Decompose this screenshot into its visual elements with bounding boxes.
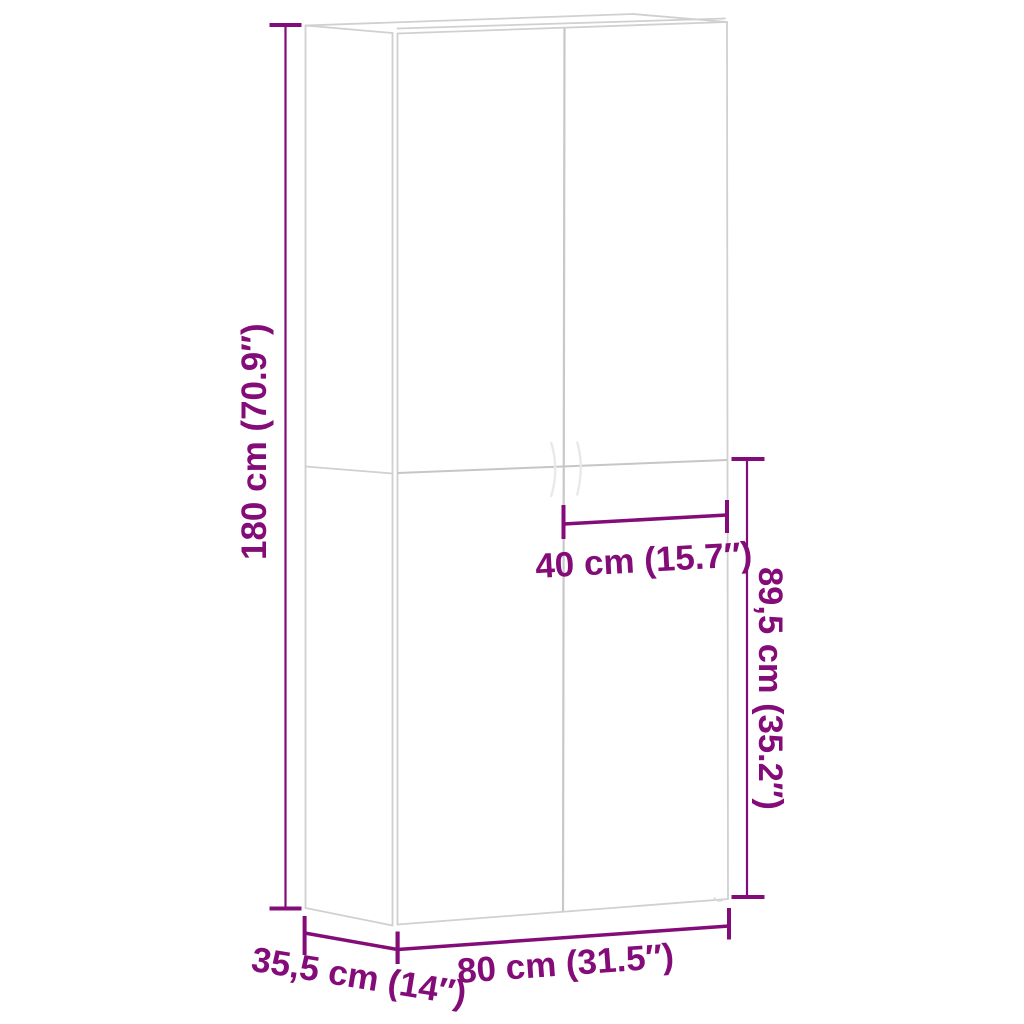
svg-text:180 cm (70.9″): 180 cm (70.9″) xyxy=(235,323,274,560)
svg-text:89,5 cm (35.2″): 89,5 cm (35.2″) xyxy=(751,567,789,810)
